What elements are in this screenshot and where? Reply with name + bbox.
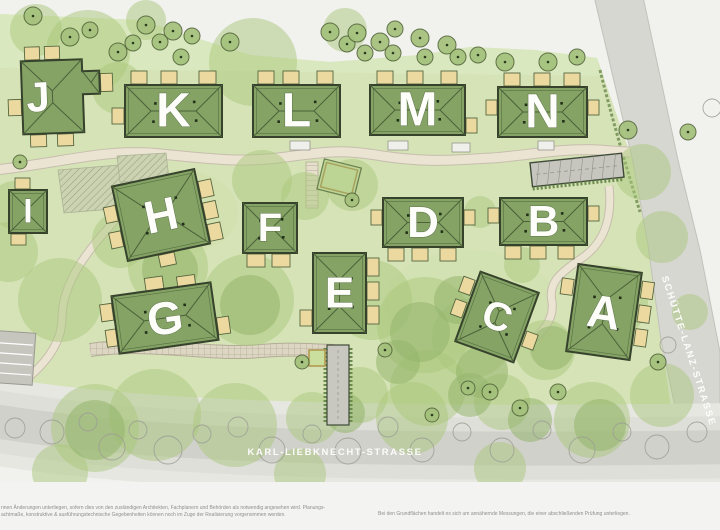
terrace	[161, 71, 177, 84]
tree-dot	[379, 41, 382, 44]
tree	[630, 363, 694, 427]
terrace	[564, 73, 580, 86]
tree-dot	[159, 41, 162, 44]
tree-dot	[384, 349, 387, 352]
utility-square	[309, 350, 325, 366]
roof-window	[282, 236, 285, 239]
tree-dot	[32, 15, 35, 18]
tree-dot	[191, 35, 194, 38]
tree-dot	[301, 361, 304, 364]
terrace	[272, 254, 290, 267]
terrace	[505, 246, 521, 259]
terrace	[8, 99, 22, 115]
terrace	[367, 306, 379, 324]
tree-dot	[547, 61, 550, 64]
tree	[109, 369, 201, 461]
roof-window	[314, 101, 317, 104]
tree-dot	[489, 391, 492, 394]
roof-window	[438, 118, 441, 121]
footer-disclaimer-left: nnen Änderungen unterliegen, sofern dies…	[1, 505, 353, 518]
tree-dot	[356, 32, 359, 35]
building-label-L: L	[282, 85, 311, 138]
terrace	[388, 248, 404, 261]
tree-dot	[145, 24, 148, 27]
roof-window	[563, 229, 566, 232]
tree-dot	[504, 61, 507, 64]
tree	[574, 399, 626, 451]
terrace	[560, 278, 574, 296]
roof-window	[561, 212, 564, 215]
tree-dot	[657, 361, 660, 364]
roof-window	[439, 213, 442, 216]
terrace	[216, 316, 230, 335]
tree-dot	[364, 52, 367, 55]
terrace	[377, 71, 393, 84]
terrace	[634, 329, 648, 348]
building-label-I: I	[23, 193, 32, 231]
tree-dot	[89, 29, 92, 32]
tree	[18, 258, 102, 342]
street-label-karl-liebknecht: KARL-LIEBKNECHT-STRASSE	[247, 447, 422, 458]
terrace	[464, 210, 475, 225]
roof-window	[193, 101, 196, 104]
building-L[interactable]: L	[253, 71, 340, 138]
bike-rack	[538, 141, 554, 150]
terrace	[534, 73, 550, 86]
terrace	[371, 210, 382, 225]
tree-dot	[180, 56, 183, 59]
terrace	[486, 100, 497, 115]
terrace	[44, 46, 59, 60]
building-label-K: K	[156, 85, 191, 138]
tree-dot	[467, 387, 470, 390]
tree-dot	[419, 37, 422, 40]
building-label-J: J	[26, 73, 51, 121]
terrace	[407, 71, 423, 84]
roof-window	[316, 119, 319, 122]
building-label-F: F	[258, 206, 282, 250]
terrace	[30, 135, 46, 148]
tree-dot	[172, 30, 175, 33]
terrace	[588, 206, 599, 221]
tree-dot	[329, 31, 332, 34]
terrace	[466, 118, 477, 133]
tree-dot	[394, 28, 397, 31]
roof-window	[195, 119, 198, 122]
tree-dot	[557, 391, 560, 394]
footer-disclaimer-line2: achtmaße, konstruktive & ausführungstech…	[1, 512, 353, 519]
terrace	[11, 234, 26, 245]
tree-dot	[431, 414, 434, 417]
roof-window	[188, 324, 191, 327]
roof-window	[560, 102, 563, 105]
terrace	[530, 246, 546, 259]
tree-dot	[19, 161, 22, 164]
roof-window	[182, 223, 185, 226]
terrace	[15, 178, 30, 189]
building-label-N: N	[525, 86, 560, 139]
roof-window	[562, 120, 565, 123]
terrace	[558, 246, 574, 259]
terrace	[640, 281, 654, 300]
roof-window	[183, 303, 186, 306]
roof-window	[152, 120, 155, 123]
building-label-M: M	[398, 84, 438, 137]
terrace	[504, 73, 520, 86]
building-label-G: G	[144, 290, 187, 346]
tree-dot	[519, 407, 522, 410]
tree	[65, 400, 125, 460]
terrace	[588, 100, 599, 115]
terrace	[317, 71, 333, 84]
tree-dot	[392, 52, 395, 55]
bike-rack	[290, 141, 310, 150]
tree-dot	[627, 129, 630, 132]
tree-dot	[477, 54, 480, 57]
roof-window	[145, 331, 148, 334]
bike-rack	[388, 141, 408, 150]
tree	[636, 211, 688, 263]
terrace	[441, 71, 457, 84]
terrace	[300, 310, 312, 326]
tree-dot	[446, 44, 449, 47]
tree-dot	[576, 56, 579, 59]
terrace	[247, 254, 265, 267]
terrace	[367, 282, 379, 300]
terrace	[440, 248, 456, 261]
terrace	[112, 108, 124, 124]
tree-dot	[687, 131, 690, 134]
tree-dot	[457, 56, 460, 59]
footer-disclaimer-right: Bei den Grundflächen handelt es sich um …	[378, 511, 708, 518]
tree-dot	[132, 42, 135, 45]
terrace	[100, 303, 114, 322]
terrace	[283, 71, 299, 84]
tree-dot	[351, 199, 354, 202]
building-label-B: B	[528, 197, 560, 246]
parking-surface	[0, 331, 36, 386]
terrace	[199, 71, 216, 84]
terrace	[412, 248, 428, 261]
site-plan: ABCDEFGHIJKLMN KARL-LIEBKNECHT-STRASSE S…	[0, 0, 720, 530]
tree-dot	[229, 41, 232, 44]
terrace	[57, 134, 73, 147]
roof-window	[441, 230, 444, 233]
bike-rack	[452, 143, 470, 152]
tree-dot	[346, 43, 349, 46]
terrace	[367, 258, 379, 276]
building-label-D: D	[407, 198, 439, 247]
terrace	[24, 47, 39, 61]
site-plan-canvas: ABCDEFGHIJKLMN KARL-LIEBKNECHT-STRASSE S…	[0, 0, 720, 530]
parking-lot	[0, 331, 36, 386]
terrace	[100, 73, 113, 91]
building-label-E: E	[325, 269, 354, 318]
roof-window	[277, 120, 280, 123]
terrace	[131, 71, 147, 84]
terrace	[637, 305, 651, 324]
roof-window	[524, 230, 527, 233]
tree-dot	[69, 36, 72, 39]
footer-disclaimer-line1: nnen Änderungen unterliegen, sofern dies…	[1, 505, 353, 512]
roof-window	[174, 196, 177, 199]
terrace	[488, 208, 499, 223]
terrace	[258, 71, 274, 84]
tree-dot	[424, 56, 427, 59]
tree-dot	[117, 51, 120, 54]
